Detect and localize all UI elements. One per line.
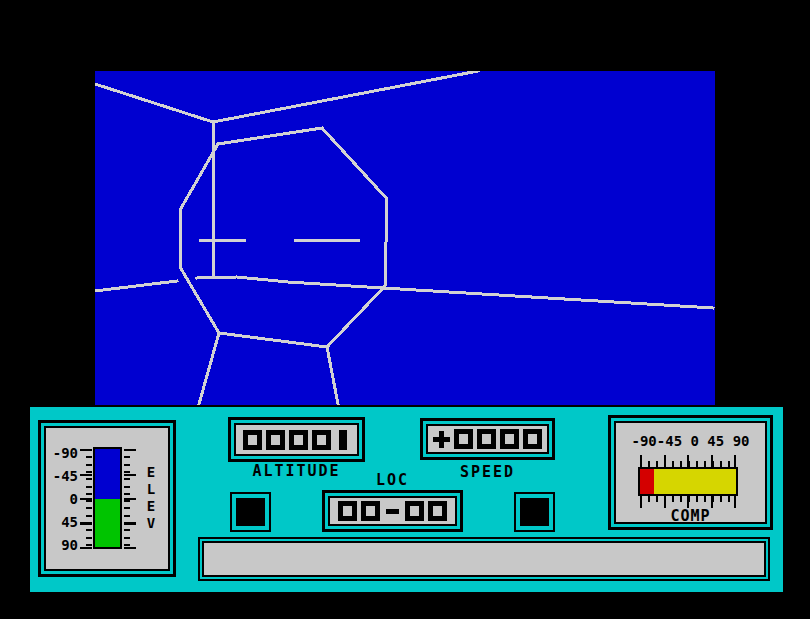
elev-label: E L E V: [140, 464, 162, 532]
altitude-display: [228, 417, 365, 462]
digit-0: [243, 430, 262, 450]
indicator-button-right[interactable]: [514, 492, 555, 532]
elev-scale-tick-label: -90: [46, 447, 78, 459]
compass-gauge-face: -90-45 0 45 90 COMP: [614, 421, 767, 524]
message-text: [202, 541, 766, 577]
loc-display: [322, 490, 463, 532]
compass-bar: [638, 467, 738, 496]
viewport-3d[interactable]: [95, 71, 715, 405]
elev-bar-positive-segment: [95, 499, 120, 547]
indicator-button-left[interactable]: [230, 492, 271, 532]
elev-scale-tick-label: 45: [46, 516, 78, 528]
digit--: [386, 509, 399, 514]
digit-0: [428, 501, 447, 521]
digit-0: [454, 429, 473, 449]
elev-ticks-right: [124, 449, 136, 549]
digit-0: [477, 429, 496, 449]
compass-bar-yellow-segment: [654, 469, 736, 494]
compass-bar-red-segment: [640, 469, 654, 494]
elev-scale: -90 -45 0 45 90: [46, 447, 78, 551]
elev-gauge: -90 -45 0 45 90 E L E V: [38, 420, 176, 577]
digit-0: [338, 501, 357, 521]
speed-value: [426, 424, 549, 454]
digit-0: [405, 501, 424, 521]
loc-value: [328, 496, 457, 526]
compass-gauge: -90-45 0 45 90 COMP: [608, 415, 773, 530]
digit-0: [266, 430, 285, 450]
instrument-panel: -90 -45 0 45 90 E L E V ALTITUDE: [30, 407, 783, 592]
message-bar: [198, 537, 770, 581]
digit-0: [500, 429, 519, 449]
indicator-button-left-face: [236, 498, 265, 526]
compass-label: COMP: [616, 507, 765, 525]
loc-label: LOC: [322, 471, 463, 489]
speed-display: [420, 418, 555, 460]
elev-scale-tick-label: 0: [46, 493, 78, 505]
compass-ticks-top: [640, 455, 736, 467]
wireframe-scene: [95, 71, 715, 405]
digit-+: [433, 431, 450, 448]
compass-scale: -90-45 0 45 90: [616, 434, 765, 449]
game-screen: -90 -45 0 45 90 E L E V ALTITUDE: [0, 0, 810, 619]
digit-0: [361, 501, 380, 521]
elev-bar-negative-segment: [95, 449, 120, 499]
elev-gauge-face: -90 -45 0 45 90 E L E V: [44, 426, 170, 571]
elev-scale-tick-label: 90: [46, 539, 78, 551]
elev-ticks-left: [80, 449, 92, 549]
elev-scale-tick-label: -45: [46, 470, 78, 482]
elev-bar: [93, 447, 122, 549]
digit-0: [523, 429, 542, 449]
indicator-button-right-face: [520, 498, 549, 526]
altitude-value: [234, 423, 359, 456]
digit-0: [312, 430, 331, 450]
digit-0: [289, 430, 308, 450]
digit-1: [339, 430, 347, 450]
